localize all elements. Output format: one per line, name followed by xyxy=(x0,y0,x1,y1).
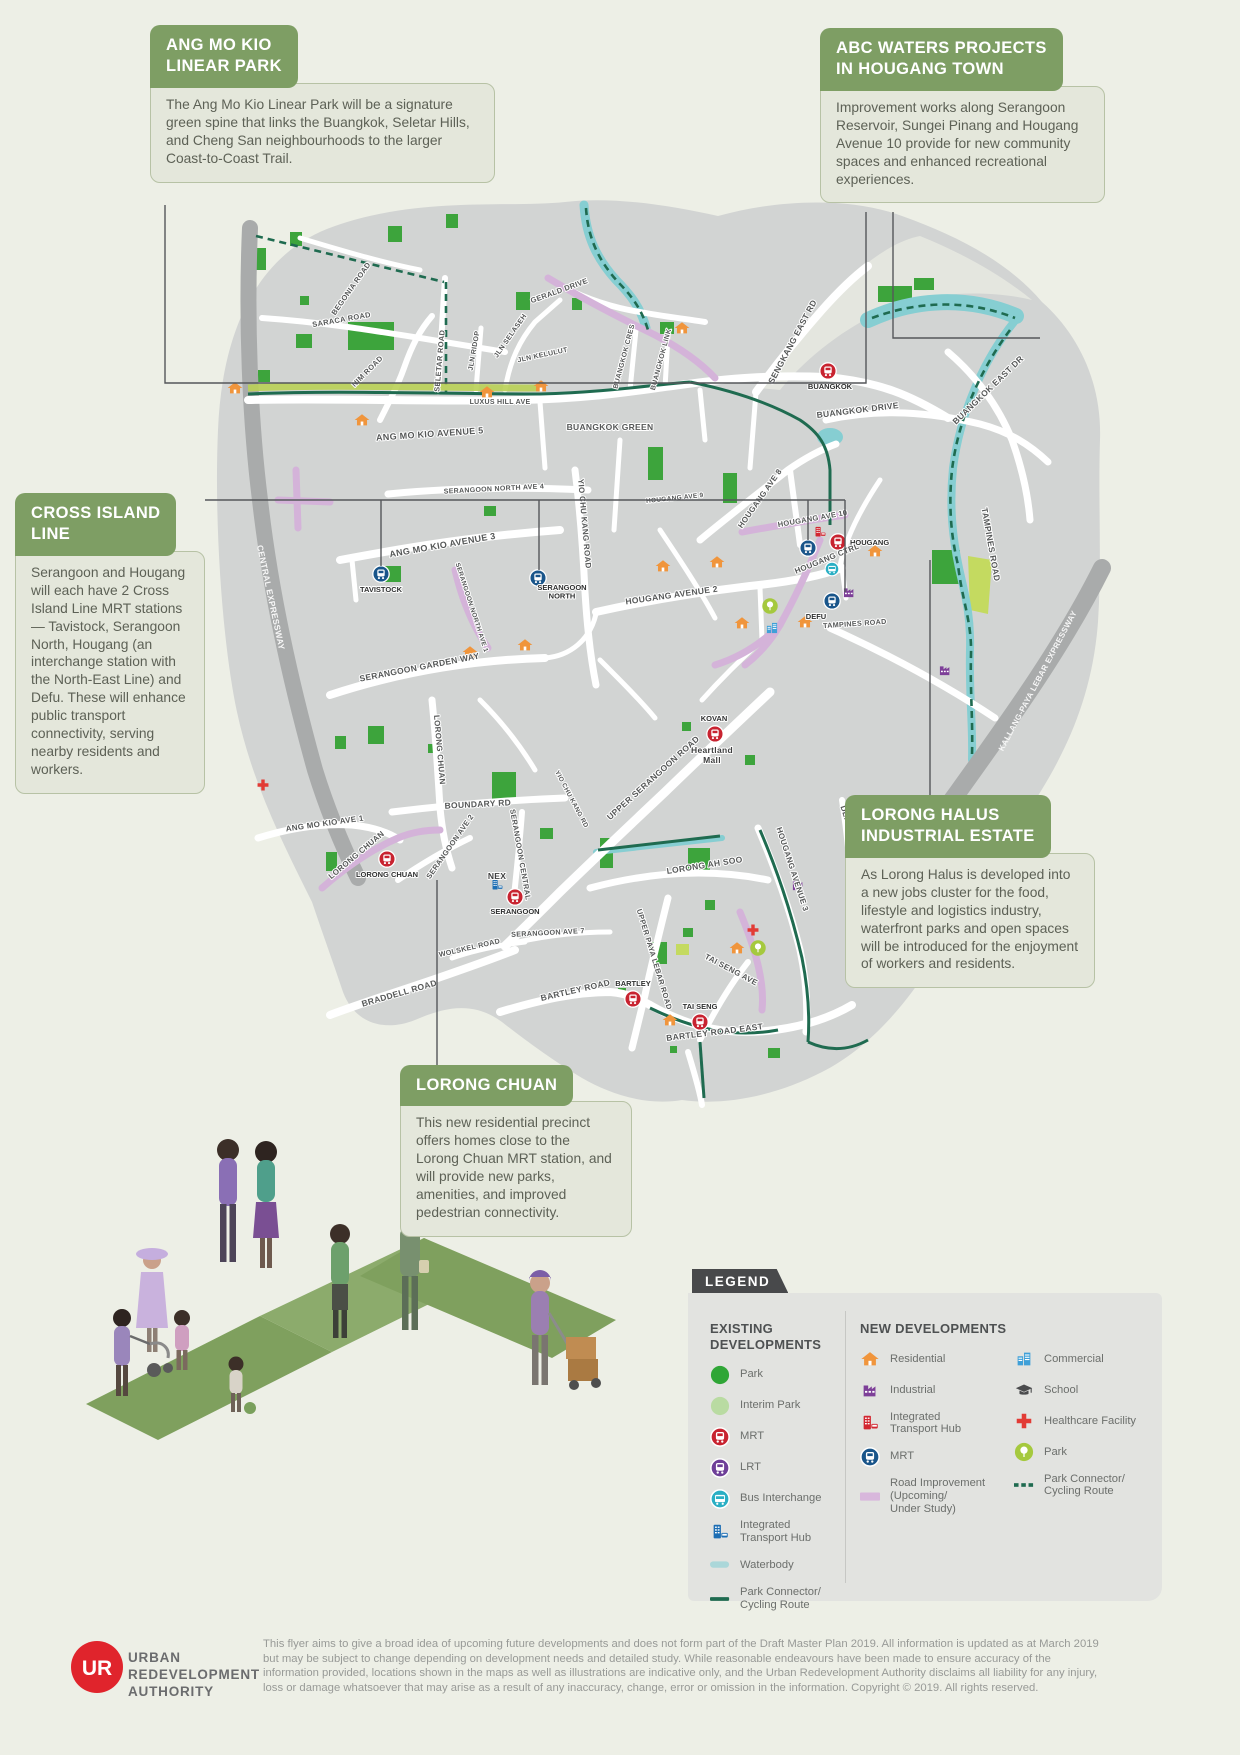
svg-text:UR: UR xyxy=(82,1657,112,1680)
legend-item: Road Improvement (Upcoming/ Under Study) xyxy=(860,1477,1008,1516)
ith-new-icon xyxy=(860,1413,880,1433)
commercial-icon xyxy=(1014,1349,1034,1369)
legend-item-label: MRT xyxy=(740,1430,764,1443)
callout-body: Serangoon and Hougang will each have 2 C… xyxy=(15,551,205,794)
callout-title: ANG MO KIO LINEAR PARK xyxy=(150,25,298,88)
callout-title: ABC WATERS PROJECTS IN HOUGANG TOWN xyxy=(820,28,1063,91)
legend-item-label: Waterbody xyxy=(740,1559,794,1572)
station-marker-defu xyxy=(824,593,840,609)
legend-title: LEGEND xyxy=(692,1269,788,1293)
mrt-new-icon xyxy=(860,1447,880,1467)
legend-existing-heading: EXISTING DEVELOPMENTS xyxy=(710,1321,842,1352)
legend-new-developments-col1: NEW DEVELOPMENTS ResidentialIndustrial I… xyxy=(860,1321,1008,1526)
station-marker-serangoon xyxy=(507,889,523,905)
callout-body: This new residential precinct offers hom… xyxy=(400,1101,632,1237)
station-label: TAVISTOCK xyxy=(360,585,403,594)
legend-item-label: Integrated Transport Hub xyxy=(890,1411,961,1437)
trolley-boxes xyxy=(566,1337,601,1390)
legend-item-label: Park Connector/ Cycling Route xyxy=(1044,1473,1125,1499)
legend-item: Industrial xyxy=(860,1380,1008,1401)
park-icon xyxy=(710,1365,730,1385)
legend-item-label: Integrated Transport Hub xyxy=(740,1519,811,1545)
legend-item: Integrated Transport Hub xyxy=(860,1411,1008,1437)
legend-item-label: School xyxy=(1044,1384,1078,1397)
legend-item: Park xyxy=(710,1364,842,1385)
callout-body: Improvement works along Serangoon Reserv… xyxy=(820,86,1105,204)
disclaimer-text: This flyer aims to give a broad idea of … xyxy=(263,1637,1108,1696)
callout-body: As Lorong Halus is developed into a new … xyxy=(845,853,1095,989)
poi-label: NEX xyxy=(488,871,506,881)
legend-item: Park Connector/ Cycling Route xyxy=(1014,1473,1156,1499)
station-label: DEFU xyxy=(806,612,826,621)
legend-panel: LEGEND EXISTING DEVELOPMENTS ParkInterim… xyxy=(688,1293,1162,1601)
legend-item: Waterbody xyxy=(710,1555,842,1576)
legend-new-heading: NEW DEVELOPMENTS xyxy=(860,1321,1008,1337)
road-label: BUANGKOK GREEN xyxy=(567,422,654,432)
legend-item-label: Residential xyxy=(890,1353,945,1366)
legend-item: Residential xyxy=(860,1349,1008,1370)
ura-org-name: URBAN REDEVELOPMENT AUTHORITY xyxy=(128,1650,260,1701)
legend-item-label: Healthcare Facility xyxy=(1044,1415,1136,1428)
legend-item-label: Park xyxy=(740,1368,763,1381)
lrt-icon xyxy=(710,1458,730,1478)
legend-item: MRT xyxy=(710,1426,842,1447)
station-marker-lorong-chuan xyxy=(379,851,395,867)
ura-logo: UR xyxy=(68,1638,126,1696)
station-label: KOVAN xyxy=(701,714,728,723)
station-marker-hougang-bus-interchange xyxy=(825,562,839,576)
legend-item: Healthcare Facility xyxy=(1014,1411,1156,1432)
callout-lorong-halus: LORONG HALUS INDUSTRIAL ESTATE As Lorong… xyxy=(845,795,1095,988)
legend-item-label: Industrial xyxy=(890,1384,935,1397)
person-talking-1 xyxy=(217,1139,239,1262)
callout-title: CROSS ISLAND LINE xyxy=(15,493,176,556)
amk-linear-park-spine xyxy=(248,386,540,388)
station-marker-kovan xyxy=(707,726,723,742)
park-new-map-icon xyxy=(750,940,765,955)
legend-item: LRT xyxy=(710,1457,842,1478)
interim-park-icon xyxy=(710,1396,730,1416)
legend-item-label: Road Improvement (Upcoming/ Under Study) xyxy=(890,1477,985,1516)
station-label: TAI SENG xyxy=(683,1002,718,1011)
callout-ang-mo-kio-linear-park: ANG MO KIO LINEAR PARK The Ang Mo Kio Li… xyxy=(150,25,495,183)
legend-item: Park Connector/ Cycling Route xyxy=(710,1586,842,1612)
legend-item-label: MRT xyxy=(890,1450,914,1463)
bus-icon xyxy=(710,1489,730,1509)
legend-item-label: Park Connector/ Cycling Route xyxy=(740,1586,821,1612)
legend-divider xyxy=(845,1311,846,1583)
callout-lorong-chuan: LORONG CHUAN This new residential precin… xyxy=(400,1065,632,1237)
park-new-map-icon xyxy=(762,598,777,613)
station-marker-hougang-crl xyxy=(800,540,816,556)
road-label: LUXUS HILL AVE xyxy=(470,399,531,406)
legend-item: Interim Park xyxy=(710,1395,842,1416)
legend-item: Integrated Transport Hub xyxy=(710,1519,842,1545)
station-label: BARTLEY xyxy=(615,979,650,988)
callout-abc-waters: ABC WATERS PROJECTS IN HOUGANG TOWN Impr… xyxy=(820,28,1105,203)
callout-body: The Ang Mo Kio Linear Park will be a sig… xyxy=(150,83,495,183)
connector-dashed-icon xyxy=(1014,1475,1034,1495)
school-icon xyxy=(1014,1380,1034,1400)
connector-icon xyxy=(710,1589,730,1609)
flyer-page: BUANGKOK HOUGANG TAVISTOCK SERANGOONNORT… xyxy=(0,0,1240,1755)
person-talking-2 xyxy=(253,1141,279,1268)
callout-title: LORONG CHUAN xyxy=(400,1065,573,1106)
legend-item: Park xyxy=(1014,1442,1156,1463)
healthcare-icon xyxy=(1014,1411,1034,1431)
legend-item-label: Interim Park xyxy=(740,1399,800,1412)
legend-item: MRT xyxy=(860,1446,1008,1467)
callout-cross-island-line: CROSS ISLAND LINE Serangoon and Hougang … xyxy=(15,493,205,794)
waterbody-icon xyxy=(710,1555,730,1575)
legend-item-label: LRT xyxy=(740,1461,761,1474)
person-hat-lady xyxy=(136,1248,168,1352)
legend-item: Commercial xyxy=(1014,1349,1156,1370)
callout-title: LORONG HALUS INDUSTRIAL ESTATE xyxy=(845,795,1051,858)
legend-item-label: Bus Interchange xyxy=(740,1492,821,1505)
residential-icon xyxy=(860,1349,880,1369)
legend-item: School xyxy=(1014,1380,1156,1401)
station-marker-tavistock xyxy=(373,566,389,582)
legend-item-label: Commercial xyxy=(1044,1353,1104,1366)
legend-new-developments-col2: CommercialSchoolHealthcare FacilityParkP… xyxy=(1014,1321,1156,1508)
station-marker-bartley xyxy=(625,991,641,1007)
legend-item: Bus Interchange xyxy=(710,1488,842,1509)
industrial-icon xyxy=(860,1380,880,1400)
park-new-icon xyxy=(1014,1442,1034,1462)
mrt-icon xyxy=(710,1427,730,1447)
station-label: LORONG CHUAN xyxy=(356,870,418,879)
station-marker-buangkok xyxy=(820,363,836,379)
legend-existing-developments: EXISTING DEVELOPMENTS ParkInterim Park M… xyxy=(710,1321,842,1622)
station-label: SERANGOON xyxy=(490,907,539,916)
ith-icon xyxy=(710,1522,730,1542)
road-improvement-icon xyxy=(860,1487,880,1507)
legend-item-label: Park xyxy=(1044,1446,1067,1459)
